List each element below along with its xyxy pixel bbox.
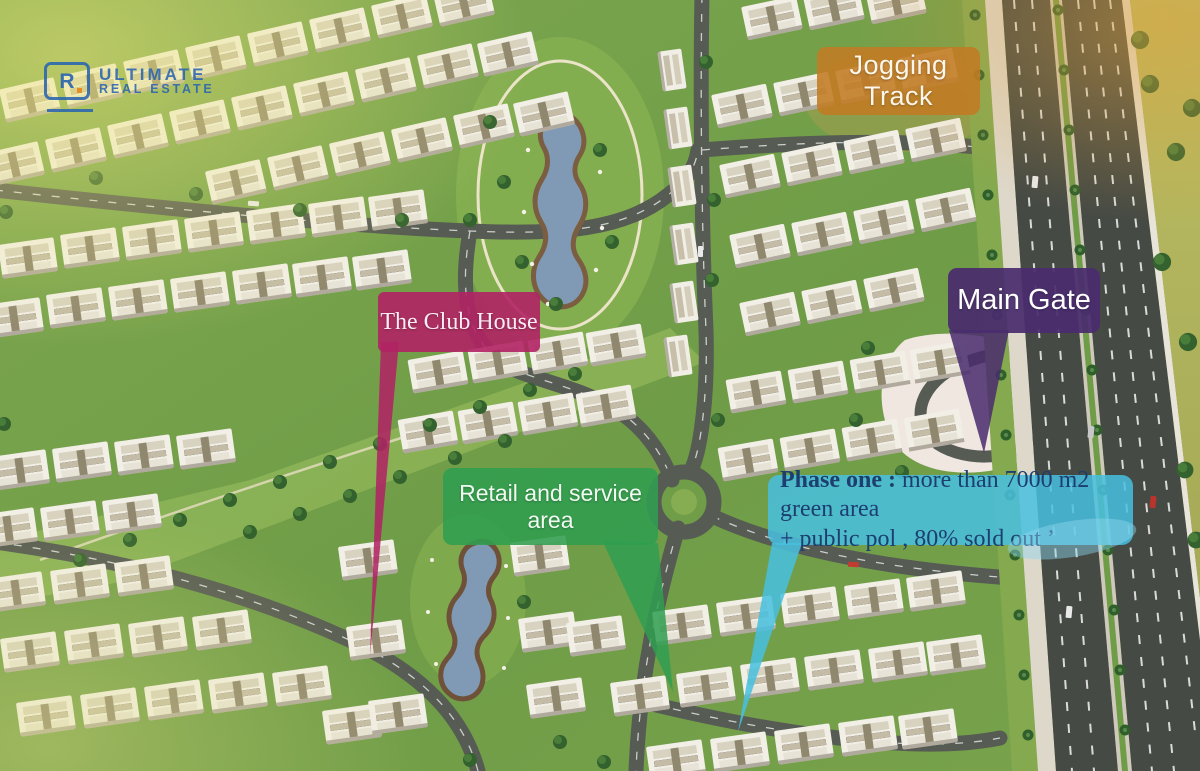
phase-one-line2-text: + public pol , 80% sold out ’ — [780, 526, 1055, 552]
retail-service-area-label: Retail and service area — [443, 468, 658, 545]
jogging-track-text: Jogging Track — [817, 50, 980, 112]
masterplan-image: Jogging Track Main Gate The Club House R… — [0, 0, 1200, 771]
brand-logo-mark-icon: R — [44, 62, 90, 100]
phase-one-bold-text: Phase one : — [780, 467, 896, 493]
brand-name-line2: REAL ESTATE — [99, 83, 215, 96]
logo-accent-dot — [77, 88, 82, 93]
brand-logo-text: ULTIMATE REAL ESTATE — [99, 66, 215, 97]
logo-mark-letter: R — [59, 71, 74, 92]
club-house-label: The Club House — [378, 292, 540, 352]
jogging-track-label: Jogging Track — [817, 47, 980, 115]
club-house-text: The Club House — [380, 309, 537, 336]
phase-one-label: Phase one : more than 7000 m2 green area… — [768, 475, 1133, 545]
main-gate-label: Main Gate — [948, 268, 1100, 333]
brand-name-line1: ULTIMATE — [99, 66, 215, 84]
logo-underbar — [47, 109, 93, 112]
phase-one-text: Phase one : more than 7000 m2 green area… — [780, 466, 1121, 554]
retail-service-area-text: Retail and service area — [443, 480, 658, 534]
main-gate-text: Main Gate — [957, 284, 1091, 317]
aerial-render — [0, 0, 1200, 771]
brand-logo: R ULTIMATE REAL ESTATE — [44, 62, 215, 100]
